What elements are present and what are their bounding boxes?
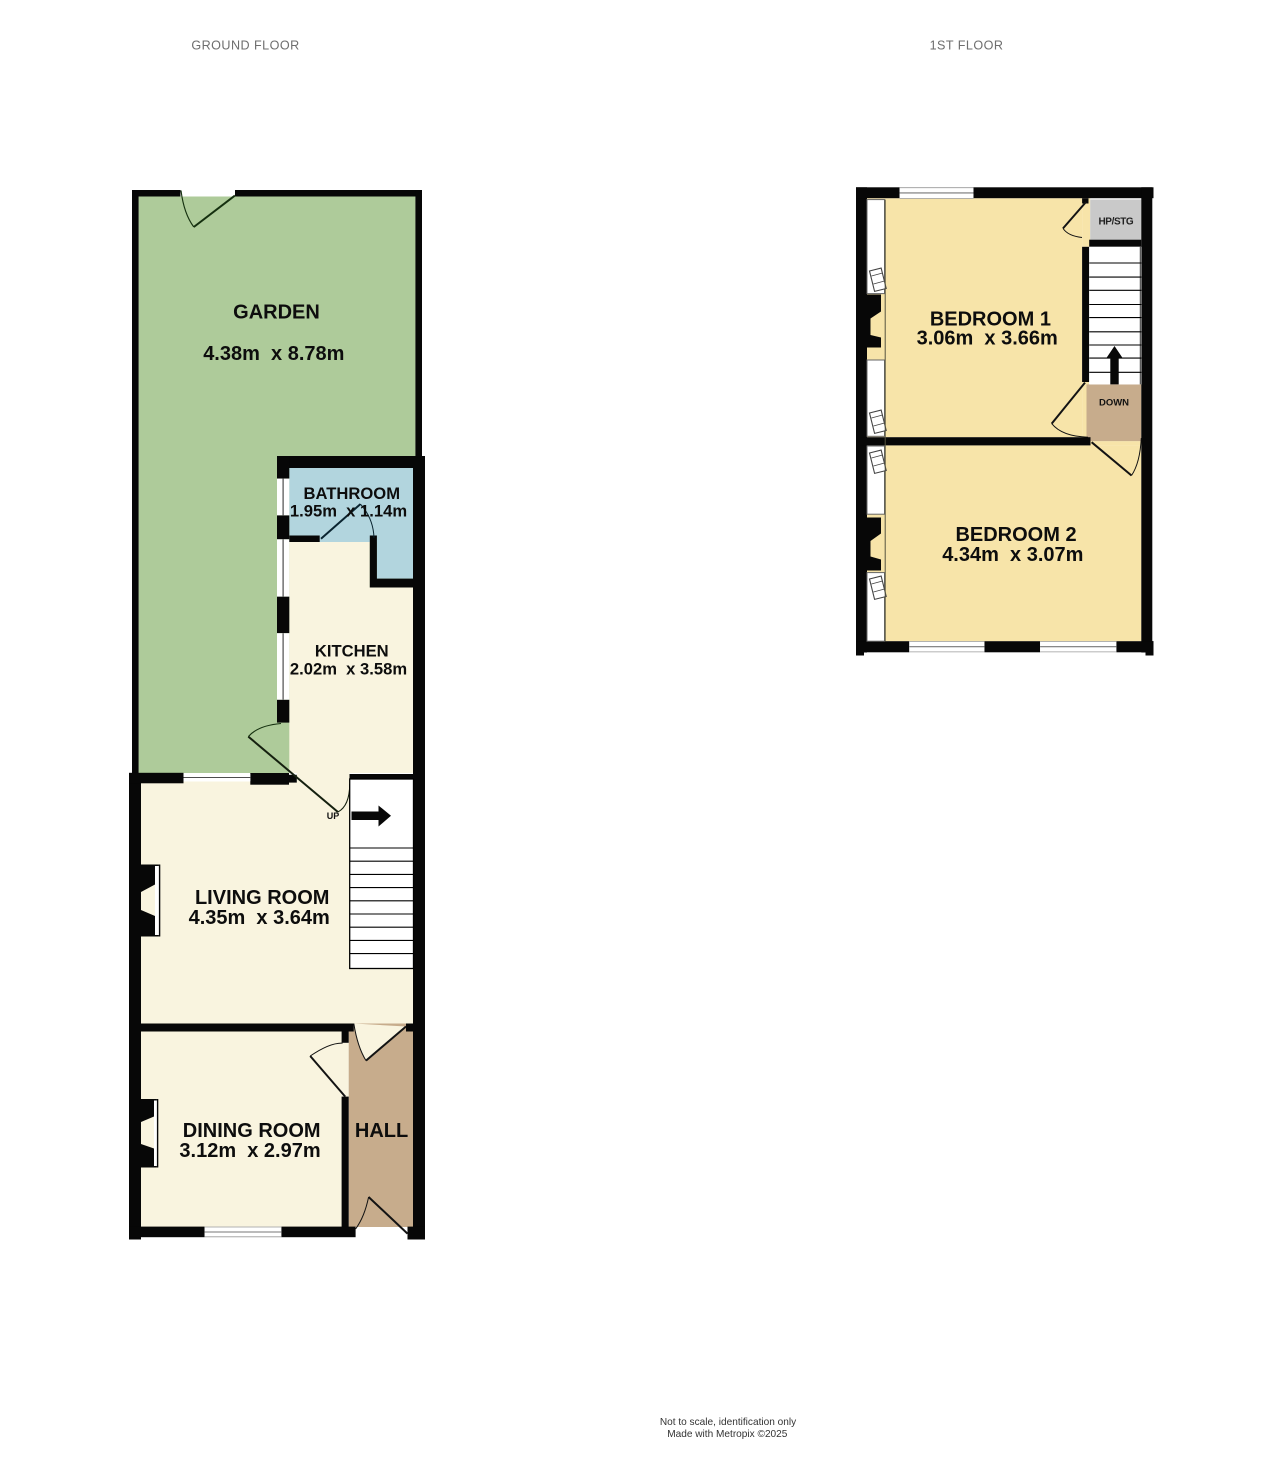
svg-text:DINING ROOM: DINING ROOM [183,1120,321,1142]
svg-text:4.38m x 8.78m: 4.38m x 8.78m [203,343,344,365]
svg-text:GROUND FLOOR: GROUND FLOOR [191,39,299,53]
svg-text:BATHROOM: BATHROOM [304,484,400,503]
svg-text:1ST FLOOR: 1ST FLOOR [930,39,1004,53]
svg-text:3.12m x 2.97m: 3.12m x 2.97m [179,1140,320,1162]
svg-text:Not to scale, identification o: Not to scale, identification only [660,1417,797,1428]
svg-text:Made with Metropix ©2025: Made with Metropix ©2025 [667,1429,788,1440]
svg-text:KITCHEN: KITCHEN [315,642,389,661]
svg-text:1.95m x 1.14m: 1.95m x 1.14m [290,502,407,521]
svg-text:2.02m x 3.58m: 2.02m x 3.58m [290,660,407,679]
svg-text:3.06m x 3.66m: 3.06m x 3.66m [917,328,1058,350]
svg-text:UP: UP [327,811,340,821]
svg-text:DOWN: DOWN [1099,398,1129,409]
svg-text:4.34m x 3.07m: 4.34m x 3.07m [942,544,1083,566]
svg-text:BEDROOM 2: BEDROOM 2 [955,524,1076,546]
svg-text:LIVING ROOM: LIVING ROOM [195,887,329,909]
svg-text:4.35m x 3.64m: 4.35m x 3.64m [189,907,330,929]
svg-text:HALL: HALL [355,1120,408,1142]
svg-text:HP/STG: HP/STG [1098,217,1133,228]
svg-text:GARDEN: GARDEN [233,301,320,323]
